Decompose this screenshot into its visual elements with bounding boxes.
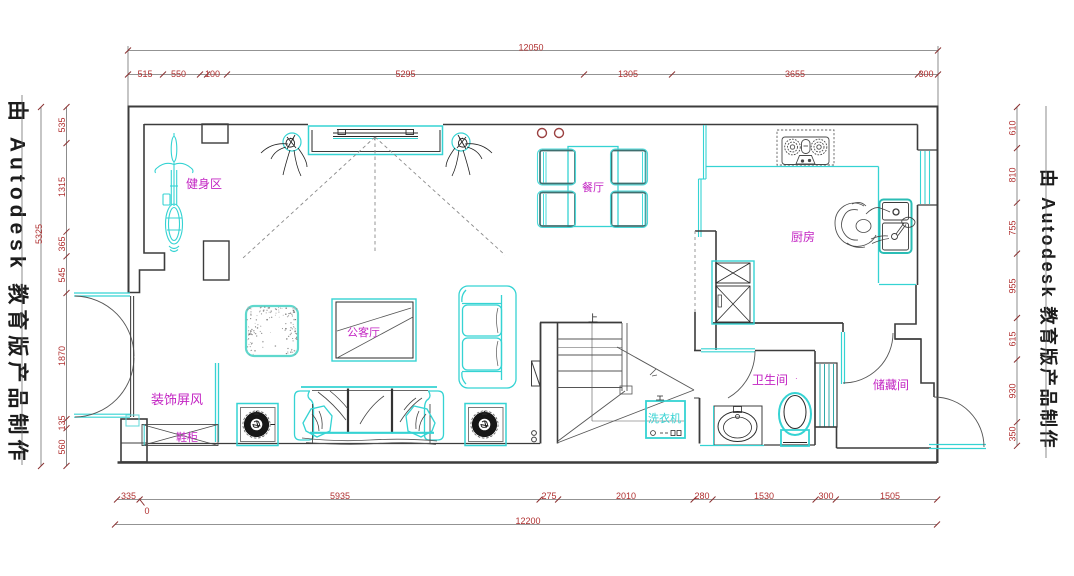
svg-text:615: 615 xyxy=(1008,331,1018,346)
svg-text:1530: 1530 xyxy=(754,491,774,501)
svg-text:健身区: 健身区 xyxy=(186,176,222,191)
svg-text:930: 930 xyxy=(1008,383,1018,398)
svg-text:535: 535 xyxy=(57,117,67,132)
svg-text:5325: 5325 xyxy=(34,224,44,244)
svg-text:810: 810 xyxy=(1008,167,1018,182)
svg-text:装饰屏风: 装饰屏风 xyxy=(151,392,203,407)
svg-text:由 Autodesk 教育版产品制作: 由 Autodesk 教育版产品制作 xyxy=(1038,169,1059,450)
svg-text:550: 550 xyxy=(171,69,186,79)
svg-text:2010: 2010 xyxy=(616,491,636,501)
svg-text:1315: 1315 xyxy=(57,177,67,197)
svg-text:5935: 5935 xyxy=(330,491,350,501)
svg-text:300: 300 xyxy=(818,491,833,501)
svg-text:515: 515 xyxy=(137,69,152,79)
svg-text:280: 280 xyxy=(694,491,709,501)
svg-text:300: 300 xyxy=(918,69,933,79)
svg-text:5295: 5295 xyxy=(395,69,415,79)
svg-text:1505: 1505 xyxy=(880,491,900,501)
svg-text:12050: 12050 xyxy=(518,43,543,53)
svg-text:洗衣机: 洗衣机 xyxy=(648,411,681,425)
svg-text:0: 0 xyxy=(144,506,149,516)
svg-text:1870: 1870 xyxy=(57,346,67,366)
svg-text:鞋柜: 鞋柜 xyxy=(176,430,198,444)
svg-text:135: 135 xyxy=(57,415,67,430)
svg-text:卫生间: 卫生间 xyxy=(752,373,788,387)
svg-text:610: 610 xyxy=(1008,120,1018,135)
svg-text:365: 365 xyxy=(57,236,67,251)
svg-text:100: 100 xyxy=(205,69,220,79)
svg-text:厨房: 厨房 xyxy=(791,229,815,244)
svg-text:上: 上 xyxy=(588,313,598,325)
svg-text:955: 955 xyxy=(1008,278,1018,293)
svg-text:545: 545 xyxy=(57,267,67,282)
svg-text:12200: 12200 xyxy=(515,516,540,526)
svg-text:755: 755 xyxy=(1008,220,1018,235)
svg-text:350: 350 xyxy=(1008,426,1018,441)
svg-text:1305: 1305 xyxy=(618,69,638,79)
svg-text:餐厅: 餐厅 xyxy=(582,180,604,194)
svg-text:335: 335 xyxy=(121,491,136,501)
svg-text:3655: 3655 xyxy=(785,69,805,79)
svg-text:由 Autodesk 教育版产品制作: 由 Autodesk 教育版产品制作 xyxy=(6,100,30,465)
svg-text:560: 560 xyxy=(57,439,67,454)
svg-text:公客厅: 公客厅 xyxy=(347,325,380,339)
svg-text:275: 275 xyxy=(541,491,556,501)
svg-text:储藏间: 储藏间 xyxy=(873,377,909,392)
svg-text:·: · xyxy=(795,374,798,383)
